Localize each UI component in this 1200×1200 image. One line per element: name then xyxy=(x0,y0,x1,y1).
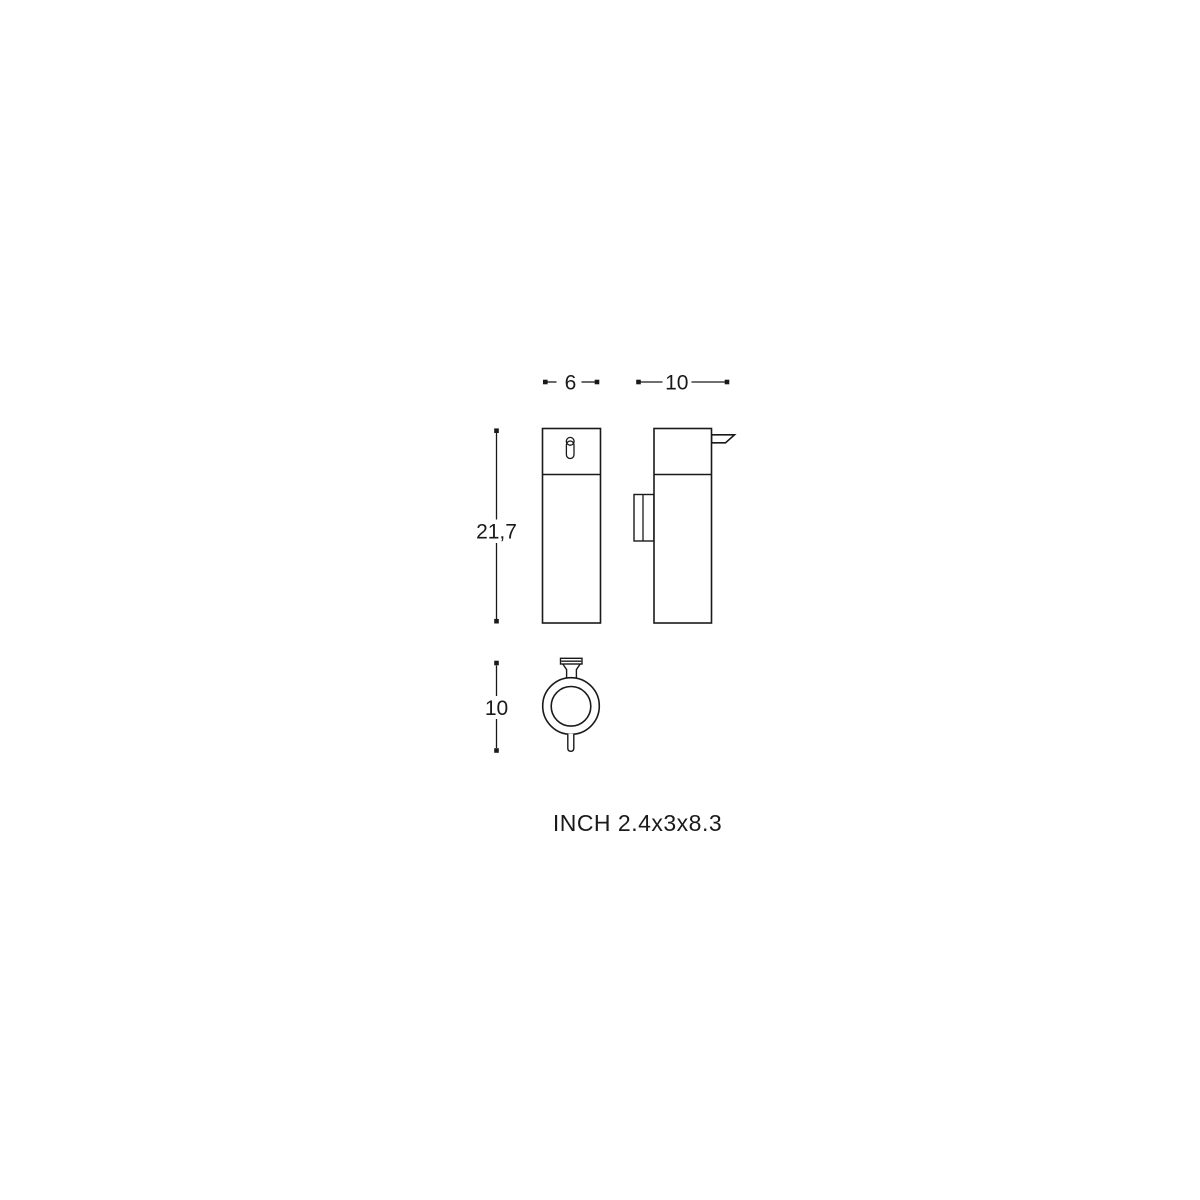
dim-top-view-depth: 10 xyxy=(485,661,508,753)
wall-bracket xyxy=(634,495,654,542)
dim-label-side-depth: 10 xyxy=(665,372,688,395)
caption-inch: INCH 2.4x3x8.3 xyxy=(553,810,722,836)
dim-side-depth: 10 xyxy=(636,372,729,395)
spout xyxy=(712,435,735,443)
side-view-body xyxy=(654,429,712,624)
dim-tick-left xyxy=(636,380,641,385)
top-view-inner-circle xyxy=(551,687,591,727)
front-view xyxy=(543,429,601,624)
dim-tick-left xyxy=(543,380,548,385)
drawing-canvas: 6 10 21,7 10 xyxy=(0,0,1200,1200)
dim-label-front-width: 6 xyxy=(565,372,577,395)
technical-drawing: 6 10 21,7 10 xyxy=(0,0,1200,1200)
top-view xyxy=(543,658,600,751)
dim-tick-right xyxy=(595,380,600,385)
top-view-spout-stem xyxy=(568,734,574,752)
dim-tick-bottom xyxy=(494,748,499,753)
top-view-bracket-neck xyxy=(563,664,580,679)
dim-tick-top xyxy=(494,661,499,666)
dim-label-top-view-depth: 10 xyxy=(485,697,508,720)
dim-tick-bottom xyxy=(494,619,499,624)
dim-tick-top xyxy=(494,428,499,433)
dim-tick-right xyxy=(725,380,730,385)
side-view xyxy=(634,429,735,624)
dim-height: 21,7 xyxy=(476,428,517,623)
dim-label-height: 21,7 xyxy=(476,521,517,544)
front-view-body xyxy=(543,429,601,624)
dim-front-width: 6 xyxy=(543,372,599,395)
